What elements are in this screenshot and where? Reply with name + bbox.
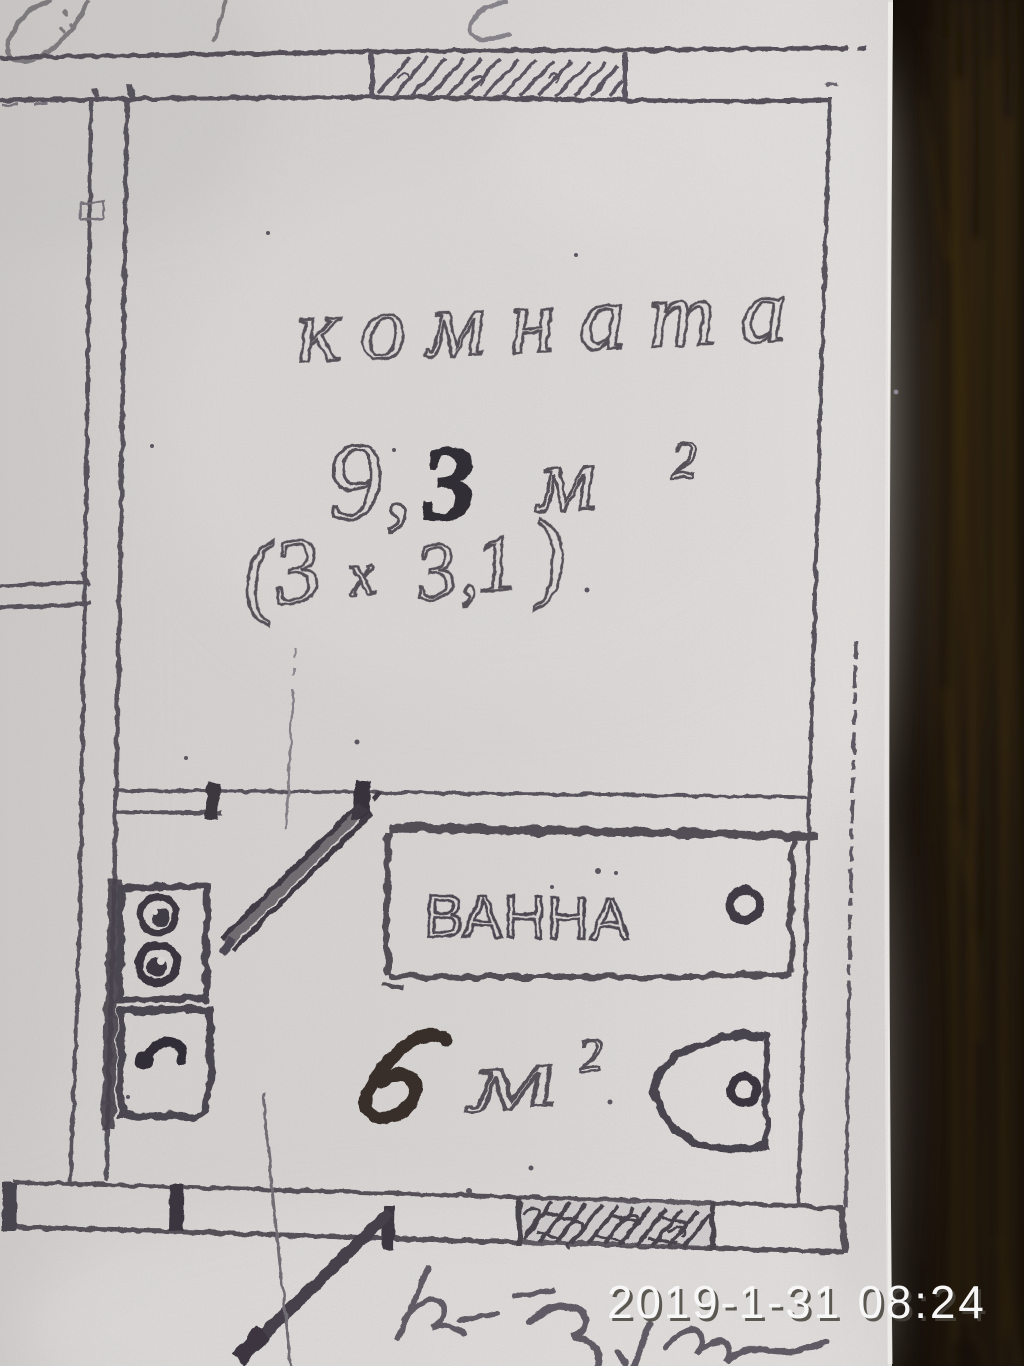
svg-text:3,1: 3,1 bbox=[410, 518, 521, 618]
svg-text:9,: 9, bbox=[323, 416, 414, 543]
svg-text:(3: (3 bbox=[236, 517, 328, 628]
svg-text:2019-1-31 08:24: 2019-1-31 08:24 bbox=[607, 1276, 987, 1328]
svg-text:ВАННА: ВАННА bbox=[424, 883, 631, 953]
svg-text:2: 2 bbox=[670, 432, 699, 490]
svg-text:2: 2 bbox=[576, 1028, 605, 1083]
svg-text:м: м bbox=[458, 1028, 559, 1132]
